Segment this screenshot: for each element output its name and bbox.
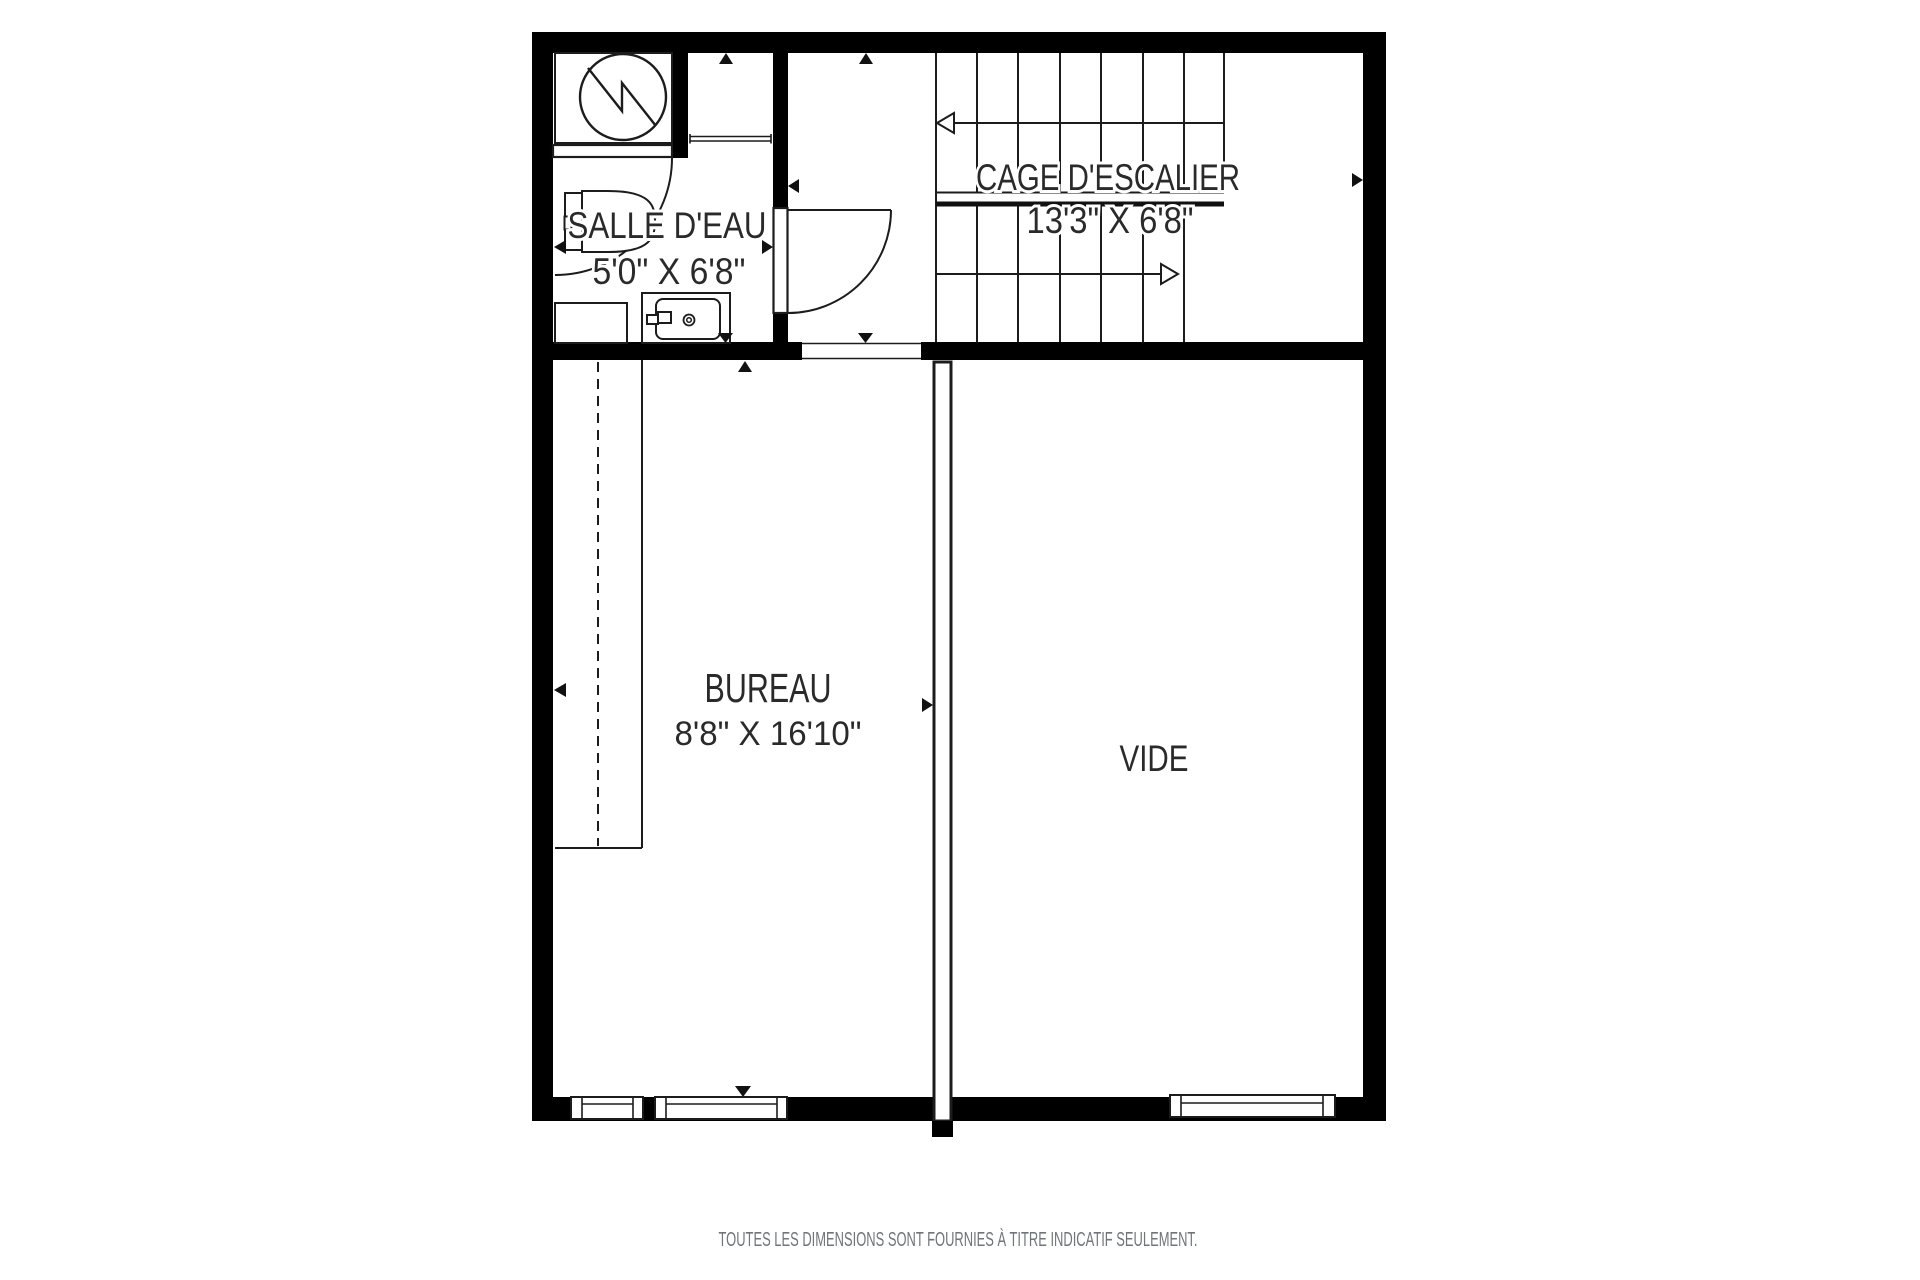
- faucet-spout: [658, 312, 671, 323]
- marker-right-stairhall: [1352, 173, 1363, 187]
- label-vide: VIDE: [1120, 738, 1189, 779]
- hall-door-leaf: [774, 208, 788, 313]
- bathroom-counter: [555, 303, 627, 343]
- label-cage-escalier-dims: 13'3" X 6'8": [1027, 200, 1194, 241]
- floor-plan-page: SALLE D'EAU 5'0" X 6'8" CAGE D'ESCALIER …: [0, 0, 1920, 1280]
- bureau-closet: [555, 360, 642, 848]
- marker-up-bureau: [738, 361, 752, 372]
- shelf-lines: [690, 134, 771, 144]
- outer-walls: [532, 32, 1386, 1121]
- label-salle-deau: SALLE D'EAU: [568, 205, 767, 246]
- water-heater-closet-wall: [672, 53, 688, 158]
- stair-down-arrowhead: [1161, 264, 1178, 284]
- closet-shelf-lines: [690, 134, 771, 144]
- marker-left-bathroom: [554, 240, 566, 254]
- window-1: [571, 1097, 643, 1119]
- faucet-base: [647, 315, 658, 324]
- marker-up-closet: [719, 53, 733, 64]
- top-wall: [532, 32, 1386, 53]
- bathroom: [553, 53, 730, 343]
- window-2: [655, 1097, 787, 1119]
- window-2-frame: [655, 1097, 787, 1119]
- label-bureau: BUREAU: [705, 665, 832, 711]
- disclaimer-text: TOUTES LES DIMENSIONS SONT FOURNIES À TI…: [719, 1228, 1198, 1251]
- window-3-frame: [1170, 1095, 1335, 1117]
- doorway-threshold: [802, 344, 921, 359]
- cross-wall-left: [532, 342, 802, 360]
- bathroom-door-jamb: [532, 143, 553, 158]
- bathroom-door-leaf: [553, 145, 672, 157]
- marker-up-hall: [859, 53, 873, 64]
- cross-wall-right: [921, 342, 1363, 360]
- marker-right-bureau: [922, 698, 933, 712]
- hall-door-swing-icon: [788, 210, 891, 313]
- label-bureau-dims: 8'8" X 16'10": [675, 715, 862, 753]
- stair-up-arrowhead: [937, 113, 954, 133]
- hall-door: [774, 208, 892, 313]
- room-labels: SALLE D'EAU 5'0" X 6'8" CAGE D'ESCALIER …: [568, 157, 1241, 779]
- divider-half-wall: [934, 362, 951, 1121]
- divider-end-post: [932, 1121, 953, 1137]
- label-salle-deau-dims: 5'0" X 6'8": [593, 251, 746, 292]
- marker-left-bureau: [554, 683, 566, 697]
- stair-up-arrow-icon: [937, 113, 1224, 133]
- water-heater-icon: [580, 54, 666, 140]
- window-3: [1170, 1095, 1335, 1117]
- marker-down-hall: [858, 333, 873, 343]
- marker-down-bureau: [735, 1086, 751, 1097]
- left-wall: [532, 32, 553, 1121]
- floor-plan: SALLE D'EAU 5'0" X 6'8" CAGE D'ESCALIER …: [0, 0, 1920, 1280]
- label-cage-escalier: CAGE D'ESCALIER: [976, 157, 1240, 198]
- room-divider: [932, 362, 953, 1137]
- right-wall: [1363, 32, 1386, 1121]
- sink-icon: [642, 293, 730, 343]
- marker-left-stairhall: [788, 179, 799, 193]
- hall-wall-upper: [773, 53, 788, 208]
- stair-down-arrow-icon: [937, 264, 1178, 284]
